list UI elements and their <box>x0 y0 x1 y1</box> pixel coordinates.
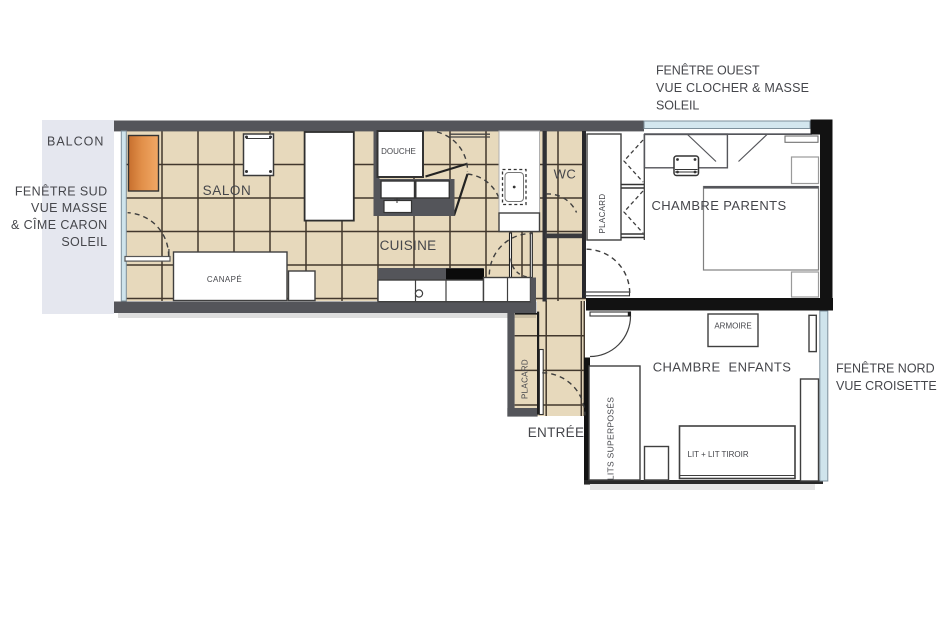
svg-text:SOLEIL: SOLEIL <box>656 99 699 113</box>
svg-text:VUE CLOCHER & MASSE: VUE CLOCHER & MASSE <box>656 81 809 95</box>
svg-text:CANAPÉ: CANAPÉ <box>207 275 242 284</box>
svg-text:VUE CROISETTE: VUE CROISETTE <box>836 379 937 393</box>
svg-text:ARMOIRE: ARMOIRE <box>714 322 751 331</box>
svg-text:& CÎME CARON: & CÎME CARON <box>11 217 107 232</box>
svg-text:CUISINE: CUISINE <box>380 238 437 253</box>
svg-text:FENÊTRE SUD: FENÊTRE SUD <box>15 184 108 199</box>
svg-text:CHAMBRE PARENTS: CHAMBRE PARENTS <box>651 198 786 213</box>
svg-text:DOUCHE: DOUCHE <box>381 147 416 156</box>
svg-text:SALON: SALON <box>203 183 252 198</box>
svg-text:PLACARD: PLACARD <box>521 359 530 399</box>
svg-text:ENTRÉE: ENTRÉE <box>528 425 585 440</box>
svg-text:FENÊTRE NORD: FENÊTRE NORD <box>836 361 935 376</box>
svg-text:WC: WC <box>554 167 577 182</box>
svg-text:LIT + LIT TIROIR: LIT + LIT TIROIR <box>688 450 749 459</box>
svg-text:SOLEIL: SOLEIL <box>61 235 107 249</box>
svg-text:PLACARD: PLACARD <box>598 194 607 234</box>
svg-text:VUE MASSE: VUE MASSE <box>31 201 108 215</box>
svg-text:LITS SUPERPOSÉS: LITS SUPERPOSÉS <box>606 397 616 480</box>
svg-text:BALCON: BALCON <box>47 135 104 149</box>
svg-text:FENÊTRE OUEST: FENÊTRE OUEST <box>656 63 760 78</box>
svg-text:CHAMBRE ENFANTS: CHAMBRE ENFANTS <box>653 360 792 375</box>
